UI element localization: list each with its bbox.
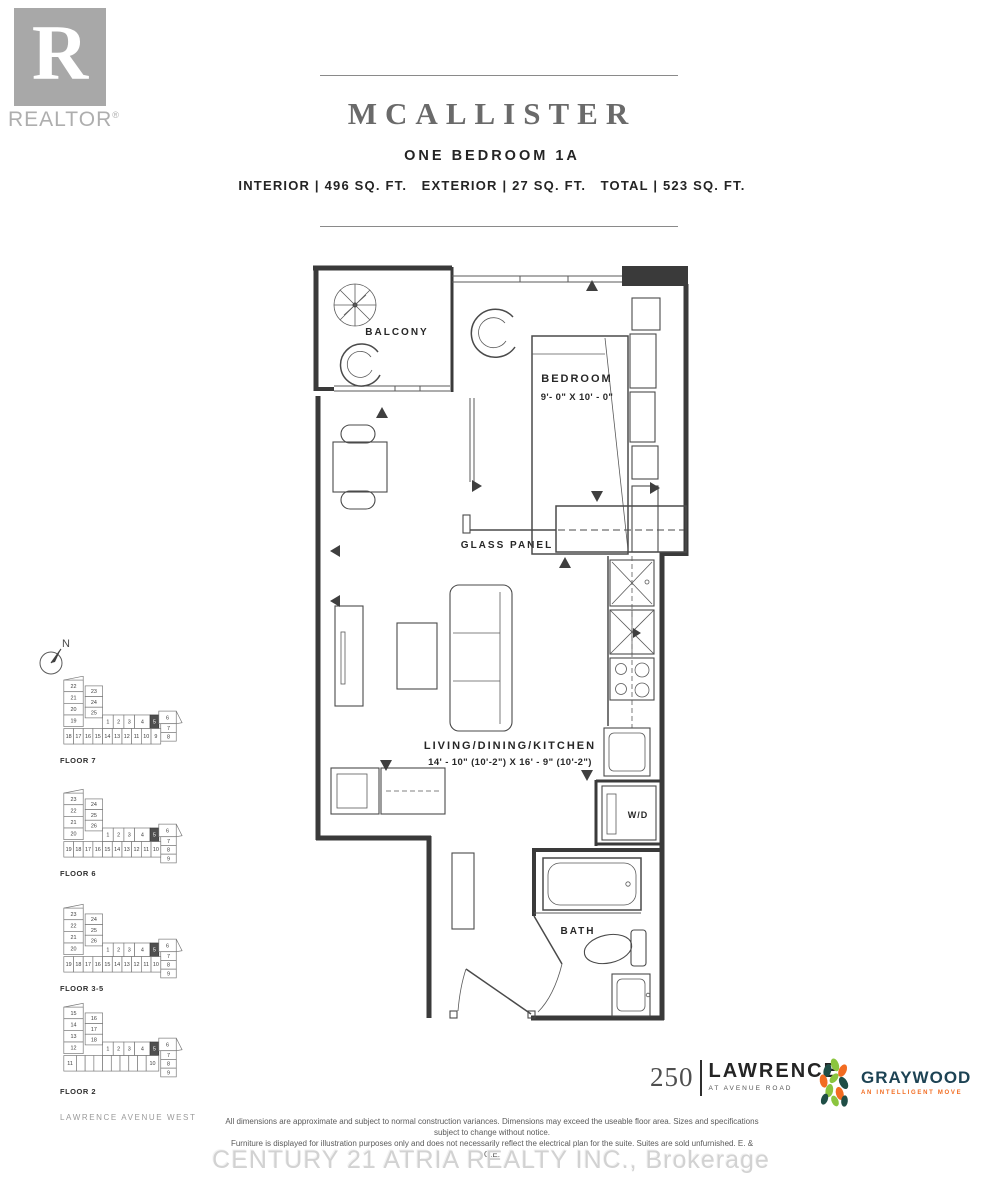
floor-3-5-label: FLOOR 3-5	[60, 984, 104, 993]
svg-text:5: 5	[153, 1047, 156, 1053]
tree-icon	[334, 284, 376, 326]
svg-text:4: 4	[141, 720, 144, 726]
svg-text:15: 15	[95, 734, 101, 740]
floor-6-label: FLOOR 6	[60, 869, 96, 878]
svg-text:7: 7	[167, 726, 170, 732]
bed	[532, 336, 628, 554]
graywood-name: GRAYWOOD	[861, 1069, 971, 1087]
svg-text:12: 12	[133, 962, 139, 968]
svg-text:4: 4	[141, 1047, 144, 1053]
svg-text:5: 5	[153, 833, 156, 839]
marker-triangle	[330, 545, 340, 557]
svg-text:26: 26	[91, 824, 97, 830]
bathtub	[543, 858, 641, 910]
key-plan-floor-6: 2322212024252612345678919181716151413121…	[58, 788, 184, 868]
svg-text:3: 3	[128, 833, 131, 839]
svg-text:10: 10	[153, 962, 159, 968]
svg-text:8: 8	[167, 735, 170, 741]
svg-text:6: 6	[166, 715, 169, 721]
marker-triangle	[559, 557, 571, 568]
bedroom-chair	[471, 309, 515, 357]
svg-text:16: 16	[91, 1016, 97, 1022]
svg-text:3: 3	[128, 1047, 131, 1053]
kitchen-peninsula	[556, 506, 686, 552]
svg-text:19: 19	[66, 847, 72, 853]
disclaimer-line-1: All dimensions are approximate and subje…	[222, 1116, 762, 1138]
svg-text:24: 24	[91, 802, 97, 808]
svg-text:3: 3	[128, 948, 131, 954]
svg-text:26: 26	[91, 939, 97, 945]
svg-text:22: 22	[70, 808, 76, 814]
svg-text:17: 17	[85, 847, 91, 853]
svg-text:16: 16	[95, 847, 101, 853]
realtor-wordmark: REALTOR®	[8, 108, 128, 132]
bathroom: BATH	[532, 850, 662, 1016]
key-plan-floor-7: 2221201923242512345678181716151413121110…	[58, 676, 184, 752]
key-plan-floor-3-5: 2322212024252612345678919181716151413121…	[58, 903, 184, 983]
realtor-logo: R	[14, 8, 106, 106]
svg-text:1: 1	[106, 948, 109, 954]
svg-text:9: 9	[167, 856, 170, 862]
svg-text:25: 25	[91, 813, 97, 819]
svg-text:25: 25	[91, 928, 97, 934]
dining-table	[333, 425, 387, 509]
svg-text:23: 23	[70, 912, 76, 918]
marker-triangle	[376, 407, 388, 418]
svg-text:18: 18	[91, 1038, 97, 1044]
svg-text:7: 7	[167, 954, 170, 960]
svg-text:9: 9	[154, 734, 157, 740]
svg-text:12: 12	[124, 734, 130, 740]
brokerage-watermark: CENTURY 21 ATRIA REALTY INC., Brokerage	[0, 1146, 982, 1175]
svg-text:23: 23	[70, 797, 76, 803]
graywood-tagline: AN INTELLIGENT MOVE	[861, 1090, 971, 1096]
graywood-leaves-icon	[816, 1056, 854, 1108]
svg-text:11: 11	[143, 962, 149, 968]
svg-text:16: 16	[85, 734, 91, 740]
250-lawrence-logo: 250 LAWRENCE AT AVENUE ROAD	[650, 1060, 839, 1096]
svg-text:6: 6	[166, 828, 169, 834]
svg-text:4: 4	[141, 833, 144, 839]
svg-text:11: 11	[67, 1061, 73, 1067]
svg-text:9: 9	[167, 1070, 170, 1076]
svg-text:1: 1	[106, 720, 109, 726]
svg-text:11: 11	[134, 734, 140, 740]
header-rule-top	[320, 75, 678, 76]
svg-text:15: 15	[104, 962, 110, 968]
svg-text:2: 2	[117, 948, 120, 954]
bath-sink	[612, 974, 650, 1016]
bath-door	[534, 916, 562, 964]
bedroom-wardrobe	[630, 298, 660, 552]
svg-text:1: 1	[106, 1047, 109, 1053]
wd-label: W/D	[628, 810, 649, 820]
svg-text:21: 21	[70, 935, 76, 941]
svg-text:6: 6	[166, 1042, 169, 1048]
svg-text:20: 20	[70, 832, 76, 838]
entry-closet	[452, 853, 474, 929]
svg-text:22: 22	[70, 923, 76, 929]
svg-text:4: 4	[141, 948, 144, 954]
svg-text:8: 8	[167, 1062, 170, 1068]
tv-console	[335, 606, 363, 706]
bedroom-label: BEDROOM	[541, 373, 612, 385]
bath-label: BATH	[560, 926, 595, 937]
svg-text:2: 2	[117, 720, 120, 726]
floor-2-label: FLOOR 2	[60, 1087, 96, 1096]
glass-panel-label: GLASS PANEL	[461, 540, 553, 551]
svg-text:14: 14	[70, 1022, 76, 1028]
svg-text:7: 7	[167, 1053, 170, 1059]
balcony-chair	[341, 344, 380, 386]
floor-plan: GLASS PANEL BALCONY	[300, 258, 700, 1080]
header-rule-bottom	[320, 226, 678, 227]
svg-text:13: 13	[70, 1034, 76, 1040]
lawrence-number: 250	[650, 1060, 694, 1094]
marker-triangle	[591, 491, 603, 502]
entry-door	[450, 969, 535, 1018]
unit-subtitle: ONE BEDROOM 1A	[242, 148, 742, 164]
svg-text:10: 10	[143, 734, 149, 740]
svg-text:24: 24	[91, 700, 97, 706]
svg-text:2: 2	[117, 1047, 120, 1053]
flyer-page: R REALTOR® MCALLISTER ONE BEDROOM 1A INT…	[0, 0, 982, 1200]
key-plan-floor-2: 151413121617181234567891110	[58, 1002, 184, 1082]
marker-triangle	[380, 760, 392, 771]
svg-text:8: 8	[167, 848, 170, 854]
svg-text:18: 18	[75, 962, 81, 968]
svg-text:17: 17	[85, 962, 91, 968]
svg-text:14: 14	[104, 734, 110, 740]
laundry-closet: W/D	[596, 780, 662, 846]
svg-text:12: 12	[70, 1046, 76, 1052]
svg-text:6: 6	[166, 943, 169, 949]
street-label: LAWRENCE AVENUE WEST	[60, 1113, 220, 1122]
compass-n-label: N	[62, 638, 70, 650]
fridge	[604, 728, 650, 776]
kitchen-counter	[604, 556, 654, 776]
page-title: MCALLISTER	[242, 96, 742, 132]
svg-text:19: 19	[70, 719, 76, 725]
svg-text:21: 21	[70, 820, 76, 826]
marker-triangle	[330, 595, 340, 607]
svg-text:10: 10	[149, 1061, 155, 1067]
svg-text:7: 7	[167, 839, 170, 845]
svg-text:25: 25	[91, 710, 97, 716]
svg-text:10: 10	[153, 847, 159, 853]
svg-text:17: 17	[75, 734, 81, 740]
coffee-table	[397, 623, 437, 689]
north-compass-icon: N	[34, 634, 76, 680]
sideboard	[331, 768, 445, 814]
marker-triangle	[581, 770, 593, 781]
bedroom-dims: 9'- 0" X 10' - 0"	[541, 392, 614, 403]
svg-text:5: 5	[153, 720, 156, 726]
svg-text:14: 14	[114, 847, 120, 853]
svg-text:11: 11	[143, 847, 149, 853]
svg-text:13: 13	[124, 847, 130, 853]
svg-text:20: 20	[70, 947, 76, 953]
svg-text:9: 9	[167, 971, 170, 977]
svg-text:17: 17	[91, 1027, 97, 1033]
svg-text:12: 12	[133, 847, 139, 853]
registered-mark: ®	[112, 110, 120, 120]
sofa	[450, 585, 512, 731]
svg-text:2: 2	[117, 833, 120, 839]
svg-text:22: 22	[70, 684, 76, 690]
svg-text:18: 18	[75, 847, 81, 853]
svg-text:23: 23	[91, 689, 97, 695]
svg-text:13: 13	[114, 734, 120, 740]
svg-text:8: 8	[167, 963, 170, 969]
svg-text:1: 1	[106, 833, 109, 839]
svg-text:21: 21	[70, 695, 76, 701]
living-dims: 14' - 10" (10'-2") X 16' - 9" (10'-2")	[428, 757, 592, 768]
marker-triangle	[472, 480, 482, 492]
svg-text:15: 15	[70, 1011, 76, 1017]
living-label: LIVING/DINING/KITCHEN	[424, 740, 596, 752]
svg-text:3: 3	[128, 720, 131, 726]
lawrence-divider	[700, 1060, 702, 1096]
area-stats: INTERIOR | 496 SQ. FT. EXTERIOR | 27 SQ.…	[192, 178, 792, 193]
svg-text:15: 15	[104, 847, 110, 853]
svg-text:18: 18	[66, 734, 72, 740]
balcony-label: BALCONY	[365, 327, 428, 338]
svg-text:24: 24	[91, 917, 97, 923]
graywood-logo: GRAYWOOD AN INTELLIGENT MOVE	[816, 1056, 971, 1108]
svg-text:13: 13	[124, 962, 130, 968]
realtor-r-letter: R	[14, 4, 106, 102]
floor-7-label: FLOOR 7	[60, 756, 96, 765]
svg-text:16: 16	[95, 962, 101, 968]
svg-text:19: 19	[66, 962, 72, 968]
svg-text:5: 5	[153, 948, 156, 954]
svg-text:14: 14	[114, 962, 120, 968]
svg-text:20: 20	[70, 707, 76, 713]
